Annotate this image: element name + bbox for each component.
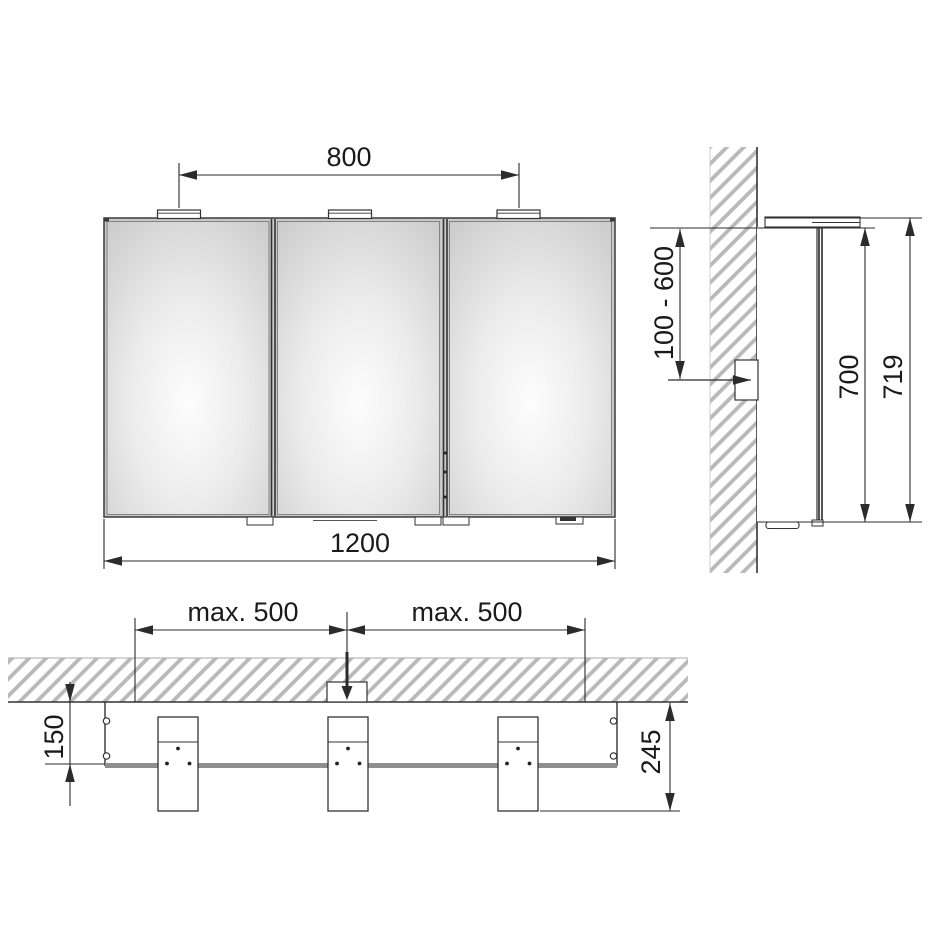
dimension-label-1200: 1200 — [330, 528, 390, 558]
bottom-tabs — [247, 517, 583, 525]
dimension-label-719: 719 — [878, 354, 908, 399]
bottom-tab-3 — [443, 517, 469, 525]
corner-mark-right — [610, 218, 615, 222]
mirror-door-middle — [278, 222, 440, 515]
mirror-door-left — [107, 222, 269, 515]
mounting-tab-side — [766, 522, 799, 529]
dimension-label-245: 245 — [636, 729, 666, 774]
light-fixture-2 — [329, 210, 372, 219]
light-top-2 — [328, 717, 368, 811]
dimension-label-800: 800 — [326, 142, 371, 172]
bottom-tab-2 — [415, 517, 441, 525]
dimension-label-max500-right: max. 500 — [411, 597, 522, 627]
tab-mark — [560, 518, 576, 522]
corner-mark-left — [104, 218, 109, 222]
technical-drawing-page: 800 1200 — [0, 0, 950, 950]
side-view: 100 - 600 700 719 — [649, 147, 922, 573]
front-view: 800 1200 — [104, 142, 615, 569]
technical-drawing: 800 1200 — [0, 0, 950, 950]
mirror-door-right — [450, 222, 612, 515]
door-foot-side — [812, 520, 823, 526]
cabinet-side-body — [757, 227, 817, 522]
light-fixture-1 — [158, 210, 201, 219]
dimension-label-700: 700 — [834, 354, 864, 399]
dimension-label-150: 150 — [39, 714, 69, 759]
light-top-3 — [498, 717, 538, 811]
light-fixture-3 — [497, 210, 540, 219]
mirror-door-side — [819, 227, 822, 521]
light-top-1 — [158, 717, 198, 811]
dimension-label-max500-left: max. 500 — [187, 597, 298, 627]
bottom-tab-1 — [247, 517, 273, 525]
dimension-label-100-600: 100 - 600 — [649, 246, 679, 360]
top-view: max. 500 max. 500 150 245 — [8, 597, 688, 811]
